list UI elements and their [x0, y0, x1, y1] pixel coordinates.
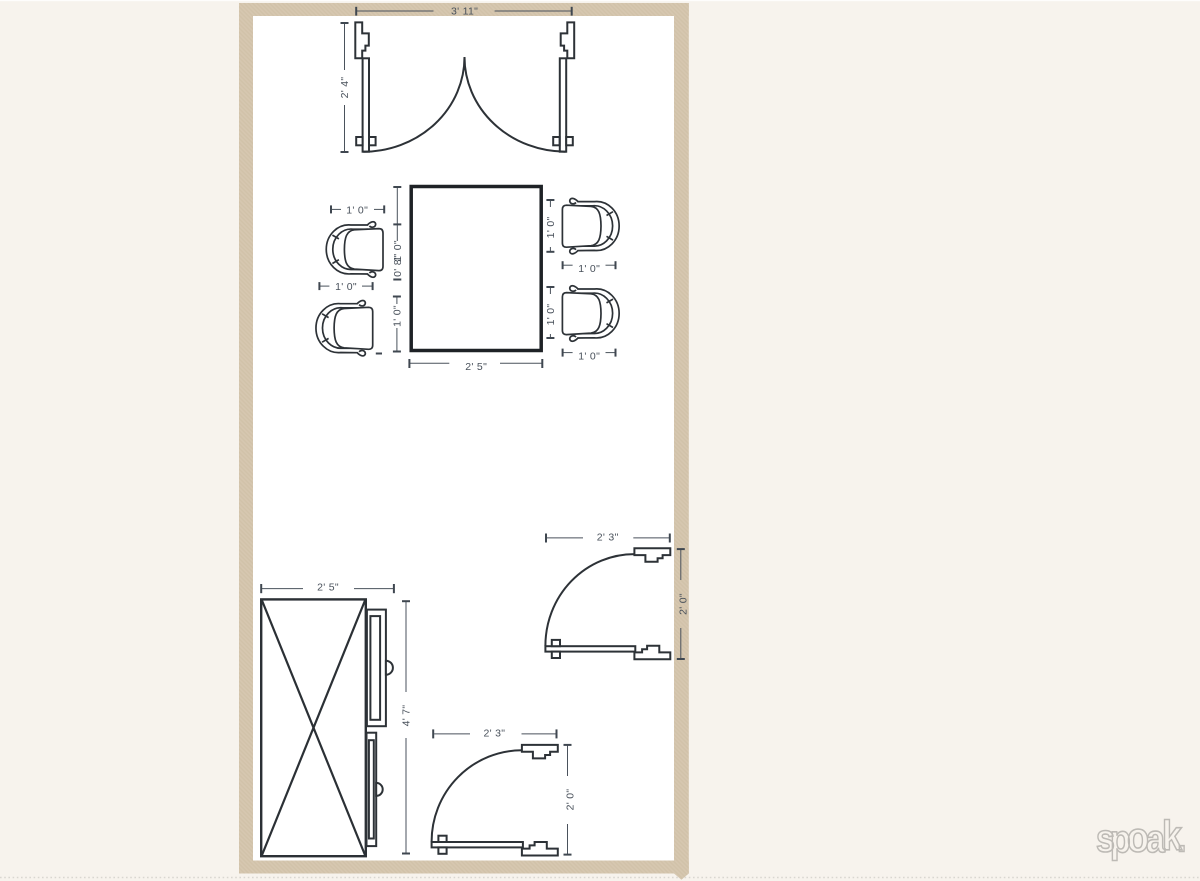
svg-text:2' 3": 2' 3"	[483, 728, 505, 740]
svg-text:4' 7": 4' 7"	[401, 705, 413, 727]
svg-text:1' 0": 1' 0"	[545, 216, 557, 238]
svg-text:3' 11": 3' 11"	[451, 6, 478, 18]
svg-text:.: .	[1177, 816, 1186, 860]
svg-text:2' 0": 2' 0"	[565, 789, 577, 811]
svg-text:2' 5": 2' 5"	[317, 582, 339, 594]
svg-text:2' 3": 2' 3"	[597, 532, 619, 544]
svg-text:1' 0": 1' 0"	[391, 305, 403, 327]
svg-text:2' 4": 2' 4"	[339, 77, 351, 99]
svg-text:1' 0": 1' 0"	[346, 204, 368, 216]
svg-text:2' 5": 2' 5"	[465, 361, 487, 373]
svg-text:1' 0": 1' 0"	[545, 304, 557, 326]
svg-text:2' 0": 2' 0"	[677, 593, 689, 615]
svg-text:1' 0": 1' 0"	[578, 350, 600, 362]
svg-text:1' 0": 1' 0"	[392, 240, 404, 262]
svg-text:1' 0": 1' 0"	[335, 281, 357, 293]
svg-text:1' 0": 1' 0"	[578, 263, 600, 275]
